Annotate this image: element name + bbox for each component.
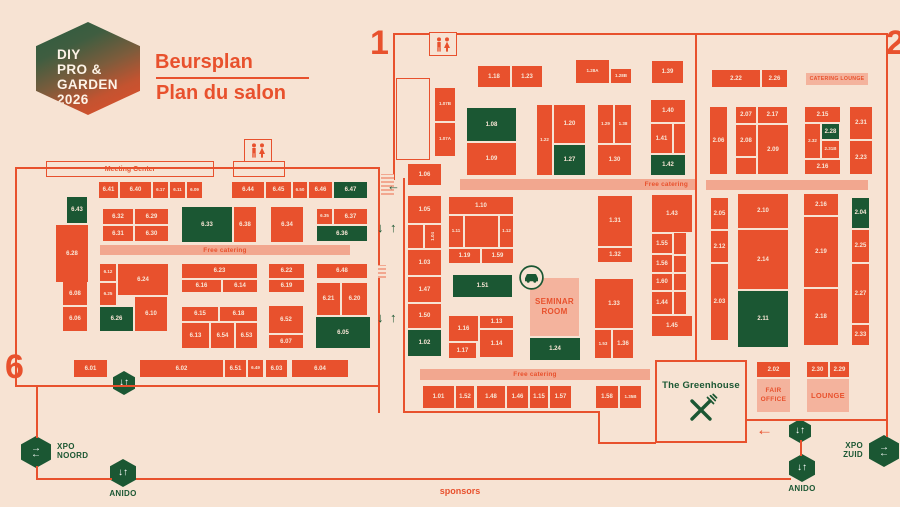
catering-label: Free catering <box>203 247 246 254</box>
booth-1.05: 1.05 <box>408 196 441 223</box>
hall-1-marker: 1 <box>370 26 389 60</box>
car-shuttle-icon <box>519 265 544 290</box>
booth-6.35: 6.35 <box>317 209 332 224</box>
booth-label: 1.01 <box>433 394 445 400</box>
border-line <box>15 385 380 387</box>
border-line <box>393 35 395 180</box>
booth-label: 6.06 <box>69 316 81 322</box>
booth-2.33: 2.33 <box>852 325 869 345</box>
border-line <box>136 478 791 480</box>
booth-label: 6.04 <box>314 366 326 372</box>
booth-label: 6.32 <box>112 214 124 220</box>
booth-label: 1.28B <box>615 74 627 79</box>
booth-label: 2.31B <box>824 147 836 152</box>
booth-label: 6.17 <box>156 188 165 193</box>
booth-2.08: 2.08 <box>736 125 756 156</box>
booth-6.46: 6.46 <box>309 182 332 198</box>
booth-label: 2.17 <box>767 112 779 118</box>
booth-label: 1.39 <box>662 69 674 75</box>
booth-6.11: 6.11 <box>170 182 185 198</box>
booth-label: 1.16 <box>458 326 470 332</box>
booth-6.05: 6.05 <box>316 317 370 348</box>
booth-1.59: 1.59 <box>482 249 513 263</box>
booth-label: 1.38 <box>619 122 628 127</box>
booth-6.09: 6.09 <box>187 182 202 198</box>
booth-label: 2.19 <box>815 249 827 255</box>
booth-label: 1.18 <box>488 74 500 80</box>
booth-2.15: 2.15 <box>805 107 840 122</box>
booth-1.45: 1.45 <box>652 316 692 336</box>
booth-1.60: 1.60 <box>652 274 672 290</box>
sponsors-label: sponsors <box>410 486 510 496</box>
booth-label: 1.02 <box>419 340 431 346</box>
anido-east-label: ANIDO <box>772 485 832 494</box>
booth-label: 2.16 <box>815 202 827 208</box>
booth-label: 6.23 <box>214 268 226 274</box>
booth-label: 6.48 <box>336 268 348 274</box>
hall-2-marker: 2 <box>886 26 900 60</box>
booth-label: 2.28 <box>825 129 837 135</box>
booth-label: 6.25 <box>104 292 113 297</box>
logo-line: GARDEN <box>57 77 140 92</box>
booth-6.31: 6.31 <box>103 226 133 241</box>
booth-label: 6.33 <box>201 222 213 228</box>
booth-label: 1.04 <box>431 232 436 241</box>
booth-6.37: 6.37 <box>334 209 367 224</box>
booth-label: 2.02 <box>768 367 780 373</box>
border-line <box>378 167 380 413</box>
booth-label: 2.31 <box>855 120 867 126</box>
logo-line: DIY <box>57 47 140 62</box>
arrow-up-icon: ↑ <box>390 221 397 234</box>
booth-6.14: 6.14 <box>223 280 257 292</box>
seminar-room-label: SEMINAR <box>535 297 574 307</box>
booth-6.51: 6.51 <box>225 360 246 377</box>
booth-label: 1.50 <box>419 313 431 319</box>
booth-unlabeled <box>465 216 498 247</box>
booth-label: 2.30 <box>812 367 824 373</box>
booth-label: 6.22 <box>281 268 293 274</box>
booth-label: 1.29 <box>601 122 610 127</box>
booth-1.31: 1.31 <box>598 196 632 246</box>
booth-1.18: 1.18 <box>478 66 510 87</box>
booth-label: 6.07 <box>280 339 292 345</box>
booth-6.06: 6.06 <box>63 307 87 331</box>
booth-2.26: 2.26 <box>762 70 787 87</box>
booth-1.43: 1.43 <box>652 195 692 232</box>
booth-label: 1.44 <box>656 300 668 306</box>
border-line <box>598 411 600 444</box>
booth-label: 2.10 <box>757 208 769 214</box>
booth-label: 6.53 <box>241 333 253 339</box>
booth-label: 6.50 <box>296 188 305 193</box>
booth-1.07B: 1.07B <box>435 88 455 121</box>
free-catering-hall1-bottom: Free catering <box>420 369 650 380</box>
booth-6.36: 6.36 <box>317 226 367 241</box>
booth-label: 1.40 <box>662 108 674 114</box>
booth-1.14: 1.14 <box>480 330 513 357</box>
booth-label: 2.29 <box>834 367 846 373</box>
booth-label: 6.51 <box>230 366 242 372</box>
booth-6.45: 6.45 <box>266 182 291 198</box>
booth-label: 2.15 <box>817 112 829 118</box>
booth-6.26: 6.26 <box>100 307 133 331</box>
booth-label: 1.31 <box>609 218 621 224</box>
booth-2.27: 2.27 <box>852 264 869 323</box>
booth-label: 6.01 <box>85 366 97 372</box>
booth-label: 1.12 <box>502 229 511 234</box>
booth-2.32: 2.32 <box>805 124 820 158</box>
booth-label: 1.07B <box>439 102 451 107</box>
booth-label: 1.35B <box>624 395 636 400</box>
anido-west-label: ANIDO <box>93 490 153 499</box>
booth-label: 6.14 <box>234 283 246 289</box>
booth-label: 6.52 <box>280 317 292 323</box>
border-line <box>393 33 888 35</box>
booth-2.07: 2.07 <box>736 107 756 123</box>
booth-label: 6.38 <box>239 222 251 228</box>
booth-1.10: 1.10 <box>449 197 513 214</box>
booth-label: 6.46 <box>315 187 327 193</box>
border-line <box>800 440 802 456</box>
booth-1.27: 1.27 <box>554 145 585 175</box>
logo-line: PRO & <box>57 62 140 77</box>
booth-label: 6.08 <box>69 291 81 297</box>
booth-6.25: 6.25 <box>100 283 116 305</box>
booth-label: 6.47 <box>345 187 357 193</box>
booth-1.42: 1.42 <box>651 155 685 175</box>
booth-label: 1.36 <box>617 341 629 347</box>
booth-6.43: 6.43 <box>67 197 87 223</box>
booth-label: 1.59 <box>492 253 504 259</box>
booth-label: 6.36 <box>336 231 348 237</box>
booth-2.31: 2.31 <box>850 107 872 139</box>
xpo-noord-icon: →← <box>21 436 51 468</box>
booth-label: 2.32 <box>808 139 817 144</box>
booth-6.15: 6.15 <box>182 307 218 321</box>
booth-label: 1.47 <box>419 287 431 293</box>
booth-2.23: 2.23 <box>850 141 872 174</box>
title-nl: Beursplan <box>155 52 253 72</box>
booth-1.53: 1.53 <box>595 330 611 358</box>
booth-6.19: 6.19 <box>269 280 304 292</box>
booth-1.55: 1.55 <box>652 234 672 253</box>
booth-2.12: 2.12 <box>711 231 728 262</box>
booth-label: 1.05 <box>419 207 431 213</box>
booth-unlabeled <box>674 233 686 254</box>
fair-office-label: OFFICE <box>761 396 787 404</box>
booth-label: 1.13 <box>491 319 503 325</box>
booth-label: 1.33 <box>608 301 620 307</box>
booth-label: 6.44 <box>242 187 254 193</box>
booth-1.35B: 1.35B <box>620 386 641 408</box>
arrow-left-icon: ← <box>387 179 400 192</box>
booth-2.16: 2.16 <box>805 160 840 174</box>
booth-6.29: 6.29 <box>135 209 168 224</box>
booth-label: 2.07 <box>740 112 752 118</box>
booth-unlabeled <box>408 225 423 248</box>
stairs-hall6-icon: ↓↑ <box>113 371 135 395</box>
booth-unlabeled <box>674 256 686 272</box>
booth-label: 6.20 <box>349 296 361 302</box>
booth-1.57: 1.57 <box>550 386 571 408</box>
booth-label: 2.26 <box>769 76 781 82</box>
booth-1.39: 1.39 <box>652 61 683 83</box>
arrow-down-icon: ↓ <box>377 221 384 234</box>
booth-label: 6.45 <box>273 187 285 193</box>
booth-1.38: 1.38 <box>615 105 631 143</box>
booth-label: 2.11 <box>757 316 768 322</box>
booth-1.29: 1.29 <box>598 105 613 143</box>
booth-1.12: 1.12 <box>500 216 513 247</box>
arrow-down-icon: ↓ <box>377 311 384 324</box>
booth-1.03: 1.03 <box>408 250 441 275</box>
booth-1.24: 1.24 <box>530 338 580 360</box>
catering-label: Free catering <box>645 181 688 188</box>
booth-2.05: 2.05 <box>711 198 728 229</box>
booth-label: 1.19 <box>459 253 471 259</box>
booth-6.33: 6.33 <box>182 207 232 242</box>
anido-west-icon: ↓↑ <box>110 459 136 487</box>
booth-1.40: 1.40 <box>651 100 685 122</box>
booth-1.08: 1.08 <box>467 108 516 141</box>
wc-icon <box>244 139 272 162</box>
booth-6.49: 6.49 <box>248 360 263 377</box>
fair-office: FAIROFFICE <box>757 379 790 412</box>
booth-label: 2.33 <box>855 332 867 338</box>
booth-label: 1.43 <box>666 211 678 217</box>
booth-6.47: 6.47 <box>334 182 367 198</box>
border-line <box>403 411 600 413</box>
booth-label: 1.11 <box>452 229 461 234</box>
booth-label: 6.21 <box>323 296 335 302</box>
booth-2.02: 2.02 <box>757 362 790 377</box>
booth-2.16: 2.16 <box>804 194 838 215</box>
wc-icon <box>429 32 457 56</box>
event-logo: DIY PRO & GARDEN 2026 <box>36 22 140 115</box>
booth-label: 2.25 <box>855 243 867 249</box>
booth-label: 6.34 <box>281 222 293 228</box>
booth-6.34: 6.34 <box>271 207 303 242</box>
booth-label: 1.22 <box>540 138 549 143</box>
booth-1.28A: 1.28A <box>576 60 609 83</box>
booth-6.17: 6.17 <box>153 182 168 198</box>
booth-label: 6.19 <box>281 283 293 289</box>
booth-6.22: 6.22 <box>269 264 304 278</box>
booth-label: 2.14 <box>757 257 769 263</box>
booth-2.03: 2.03 <box>711 264 728 340</box>
booth-unlabeled <box>674 274 686 290</box>
booth-label: 6.37 <box>345 214 357 220</box>
booth-label: 1.27 <box>564 157 576 163</box>
booth-1.46: 1.46 <box>507 386 528 408</box>
booth-2.17: 2.17 <box>758 107 787 123</box>
xpo-zuid-icon: →← <box>869 435 899 467</box>
booth-1.09: 1.09 <box>467 143 516 175</box>
booth-6.20: 6.20 <box>342 283 367 315</box>
booth-label: 1.41 <box>656 136 668 142</box>
border-line <box>36 387 38 438</box>
booth-1.06: 1.06 <box>408 164 441 185</box>
booth-label: 6.35 <box>320 214 329 219</box>
page-title: Beursplan Plan du salon <box>155 52 253 72</box>
booth-label: 6.13 <box>190 333 202 339</box>
booth-label: 2.04 <box>855 210 867 216</box>
booth-1.50: 1.50 <box>408 304 441 328</box>
booth-label: 1.24 <box>549 346 561 352</box>
booth-1.04: 1.04 <box>425 225 441 248</box>
booth-label: 6.29 <box>146 214 158 220</box>
booth-label: 2.16 <box>817 164 829 170</box>
booth-6.10: 6.10 <box>135 297 167 331</box>
booth-2.28: 2.28 <box>822 124 839 139</box>
booth-2.09: 2.09 <box>758 125 788 174</box>
booth-1.47: 1.47 <box>408 277 441 302</box>
booth-1.16: 1.16 <box>449 316 478 341</box>
booth-label: 6.02 <box>176 366 188 372</box>
booth-1.19: 1.19 <box>449 249 480 263</box>
booth-label: 6.12 <box>104 270 113 275</box>
logo-line: 2026 <box>57 92 140 107</box>
booth-label: 6.16 <box>196 283 208 289</box>
booth-6.38: 6.38 <box>234 207 256 242</box>
booth-1.17: 1.17 <box>449 343 476 358</box>
booth-6.23: 6.23 <box>182 264 257 278</box>
booth-label: 6.49 <box>251 366 260 371</box>
booth-unlabeled <box>674 292 686 314</box>
free-catering-hall6: Free catering <box>100 245 350 255</box>
booth-2.11: 2.11 <box>738 291 788 347</box>
booth-2.04: 2.04 <box>852 198 869 228</box>
booth-unlabeled <box>674 124 685 153</box>
booth-6.24: 6.24 <box>118 264 168 295</box>
floor-plan: DIY PRO & GARDEN 2026 Beursplan Plan du … <box>0 0 900 507</box>
border-line <box>403 178 405 413</box>
booth-1.33: 1.33 <box>595 279 633 328</box>
booth-2.31B: 2.31B <box>822 141 839 158</box>
stairs-patch <box>378 265 386 278</box>
booth-label: 2.18 <box>815 314 827 320</box>
booth-label: 6.31 <box>112 231 124 237</box>
booth-label: 6.11 <box>173 188 182 193</box>
border-line <box>886 33 888 437</box>
booth-1.41: 1.41 <box>651 124 672 153</box>
booth-label: 1.56 <box>656 261 668 267</box>
booth-2.22: 2.22 <box>712 70 760 87</box>
booth-label: 1.58 <box>601 394 613 400</box>
catering-strip-hall2 <box>706 180 868 190</box>
title-fr: Plan du salon <box>156 83 286 103</box>
greenhouse-area: The Greenhouse <box>655 360 747 443</box>
booth-label: 1.30 <box>609 157 621 163</box>
free-catering-hall1-top: Free catering <box>460 179 696 190</box>
booth-label: 1.48 <box>485 394 497 400</box>
booth-6.53: 6.53 <box>236 323 257 348</box>
booth-label: 2.09 <box>767 147 779 153</box>
booth-label: 1.14 <box>491 341 503 347</box>
booth-label: 2.12 <box>714 244 726 250</box>
fair-office-label: FAIR <box>765 387 781 395</box>
booth-6.07: 6.07 <box>269 335 303 348</box>
booth-label: 6.43 <box>71 207 83 213</box>
meeting-center-annex <box>233 161 285 177</box>
booth-label: 6.24 <box>137 277 149 283</box>
border-line <box>36 478 112 480</box>
booth-6.54: 6.54 <box>211 323 234 348</box>
booth-2.18: 2.18 <box>804 289 838 345</box>
booth-6.40: 6.40 <box>120 182 151 198</box>
booth-2.25: 2.25 <box>852 230 869 262</box>
meeting-center: Meeting Center <box>46 161 214 177</box>
title-divider <box>156 77 309 79</box>
booth-label: 6.09 <box>190 188 199 193</box>
arrow-up-icon: ↑ <box>390 311 397 324</box>
booth-6.13: 6.13 <box>182 323 209 348</box>
booth-label: 6.28 <box>66 251 78 257</box>
border-line <box>15 167 380 169</box>
booth-1.58: 1.58 <box>596 386 618 408</box>
booth-label: 1.03 <box>419 260 431 266</box>
lounge-label: LOUNGE <box>811 391 845 400</box>
booth-1.20: 1.20 <box>554 105 585 143</box>
arrow-left-icon: ← <box>756 421 773 438</box>
booth-2.29: 2.29 <box>830 362 849 377</box>
border-line <box>15 167 17 387</box>
booth-label: 2.08 <box>740 138 752 144</box>
booth-label: 2.23 <box>855 155 867 161</box>
catering-lounge: CATERING LOUNGE <box>806 73 868 85</box>
booth-label: 1.20 <box>564 121 576 127</box>
booth-6.18: 6.18 <box>220 307 257 321</box>
booth-label: 2.22 <box>730 76 742 82</box>
border-line <box>695 33 697 361</box>
booth-1.28B: 1.28B <box>611 69 631 83</box>
booth-label: 1.17 <box>457 348 469 354</box>
booth-label: 6.30 <box>146 231 158 237</box>
booth-1.22: 1.22 <box>537 105 552 175</box>
booth-label: 6.18 <box>233 311 245 317</box>
booth-label: 1.60 <box>656 279 668 285</box>
booth-1.02: 1.02 <box>408 330 441 356</box>
border-line <box>598 442 656 444</box>
seminar-room-label: ROOM <box>541 307 567 317</box>
booth-6.30: 6.30 <box>135 226 168 241</box>
lounge: LOUNGE <box>807 379 849 412</box>
booth-6.44: 6.44 <box>232 182 264 198</box>
booth-1.52: 1.52 <box>456 386 474 408</box>
booth-6.32: 6.32 <box>103 209 133 224</box>
booth-1.44: 1.44 <box>652 292 672 314</box>
booth-1.56: 1.56 <box>652 255 672 272</box>
catering-lounge-label: CATERING LOUNGE <box>810 76 865 83</box>
booth-label: 6.05 <box>337 330 349 336</box>
booth-6.03: 6.03 <box>266 360 287 377</box>
booth-label: 1.46 <box>512 394 524 400</box>
booth-1.07A: 1.07A <box>435 123 455 156</box>
booth-6.50: 6.50 <box>293 182 307 198</box>
booth-label: 6.15 <box>194 311 206 317</box>
booth-unlabeled <box>736 158 756 174</box>
booth-label: 6.26 <box>111 316 123 322</box>
booth-2.19: 2.19 <box>804 217 838 287</box>
booth-1.13: 1.13 <box>480 316 513 328</box>
booth-label: 1.55 <box>656 241 668 247</box>
booth-6.12: 6.12 <box>100 264 116 281</box>
booth-label: 1.51 <box>477 283 489 289</box>
booth-label: 6.54 <box>217 333 229 339</box>
booth-label: 6.03 <box>271 366 283 372</box>
booth-label: 6.41 <box>103 187 115 193</box>
